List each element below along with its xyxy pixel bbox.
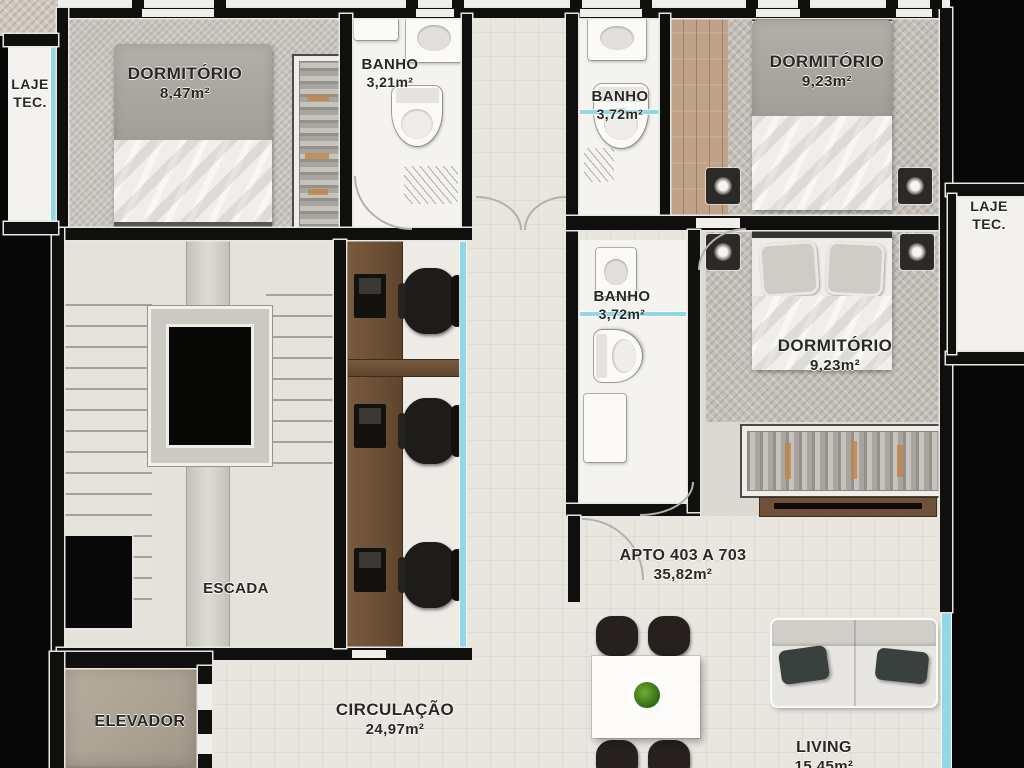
sink bbox=[588, 16, 646, 60]
room-area: 3,72m² bbox=[580, 306, 664, 323]
shaft-duct bbox=[64, 536, 132, 628]
stairs-stringer-top bbox=[186, 240, 230, 306]
dining-chair bbox=[648, 616, 690, 656]
laje-wall bbox=[948, 194, 956, 354]
stairs-right-flight bbox=[266, 294, 334, 464]
apartment-label: APTO 403 A 703 35,82m² bbox=[592, 546, 774, 584]
glass-partition bbox=[460, 242, 466, 648]
bed-pillow bbox=[825, 241, 886, 298]
wall-return bbox=[406, 0, 418, 9]
wardrobe bbox=[294, 56, 346, 232]
laptop bbox=[354, 404, 386, 448]
shower bbox=[404, 166, 458, 204]
laptop bbox=[354, 274, 386, 318]
laje-tec-left-floor bbox=[8, 46, 52, 226]
room-label-elevador: ELEVADOR bbox=[76, 712, 204, 732]
room-name: CIRCULAÇÃO bbox=[306, 700, 484, 721]
wall bbox=[660, 14, 670, 228]
room-area: 24,97m² bbox=[306, 721, 484, 739]
door-opening bbox=[142, 9, 214, 17]
door-opening bbox=[896, 9, 932, 17]
office-chair bbox=[402, 268, 458, 334]
door-opening bbox=[352, 650, 386, 658]
laje-wall-cap bbox=[4, 34, 58, 46]
tv-console bbox=[760, 498, 936, 516]
room-name: BANHO bbox=[580, 288, 664, 306]
room-label-dormitorio-3: DORMITÓRIO 9,23m² bbox=[745, 336, 925, 375]
wardrobe-clothes bbox=[897, 445, 903, 477]
sofa bbox=[772, 620, 936, 706]
laje-wall-cap bbox=[946, 352, 1024, 364]
room-area-cropped: 15,45m² bbox=[768, 758, 880, 768]
wall bbox=[57, 8, 68, 240]
room-area: 9,23m² bbox=[738, 73, 916, 91]
room-label-dormitorio-1: DORMITÓRIO 8,47m² bbox=[100, 64, 270, 103]
bed-pillow bbox=[758, 240, 820, 298]
room-name: LAJE TEC. bbox=[958, 198, 1020, 233]
bed bbox=[752, 14, 892, 210]
sofa-seat-divider bbox=[854, 620, 856, 706]
wall bbox=[334, 240, 346, 648]
wall-return bbox=[214, 0, 226, 9]
room-name: ESCADA bbox=[174, 580, 298, 598]
room-name: ELEVADOR bbox=[76, 712, 204, 732]
wall-return bbox=[570, 0, 582, 9]
room-name: DORMITÓRIO bbox=[745, 336, 925, 357]
wardrobe-clothes bbox=[305, 153, 329, 159]
laje-wall-cap bbox=[946, 184, 1024, 196]
office-chair bbox=[402, 398, 458, 464]
wall bbox=[566, 216, 952, 230]
laptop bbox=[354, 548, 386, 592]
room-label-escada: ESCADA bbox=[174, 580, 298, 598]
room-area: 9,23m² bbox=[745, 357, 925, 375]
room-area: 3,72m² bbox=[580, 106, 660, 123]
wall-return bbox=[930, 0, 942, 9]
nightstand-lamp bbox=[898, 168, 932, 204]
door-opening bbox=[580, 9, 642, 17]
wall-return bbox=[886, 0, 898, 9]
wall-return bbox=[798, 0, 810, 9]
dining-chair bbox=[596, 740, 638, 768]
office-chair bbox=[402, 542, 458, 608]
sofa-cushion bbox=[874, 647, 929, 684]
elevator-door-opening bbox=[198, 734, 212, 754]
wall bbox=[52, 228, 64, 660]
wall-return bbox=[640, 0, 652, 9]
door-opening bbox=[756, 9, 800, 17]
stairs-void bbox=[166, 324, 254, 448]
desk-divider bbox=[348, 360, 464, 376]
wall bbox=[566, 14, 578, 516]
wall bbox=[340, 14, 352, 236]
shower bbox=[584, 148, 614, 182]
wall bbox=[462, 14, 472, 236]
wardrobe bbox=[742, 426, 948, 496]
plant-centerpiece bbox=[634, 682, 660, 708]
wall-return bbox=[452, 0, 464, 9]
room-label-banho-1: BANHO 3,21m² bbox=[344, 56, 436, 91]
elevator-door-opening bbox=[198, 684, 212, 710]
nightstand-lamp bbox=[900, 234, 934, 270]
room-label-dormitorio-2: DORMITÓRIO 9,23m² bbox=[738, 52, 916, 91]
room-label-laje-tec-right: LAJE TEC. bbox=[958, 198, 1020, 233]
facade-outside-strip bbox=[58, 0, 950, 8]
room-area: 3,21m² bbox=[344, 74, 436, 91]
room-name: LAJE TEC. bbox=[6, 76, 54, 111]
wall bbox=[688, 230, 700, 512]
sink bbox=[406, 14, 462, 62]
bed-headboard bbox=[752, 230, 892, 238]
wall-return bbox=[746, 0, 758, 9]
stairs-stringer-bottom bbox=[186, 460, 230, 648]
wardrobe-clothes bbox=[308, 189, 328, 195]
room-label-banho-2: BANHO 3,72m² bbox=[580, 88, 660, 123]
wardrobe-clothes bbox=[307, 95, 329, 101]
room-label-living: LIVING 15,45m² bbox=[768, 738, 880, 768]
wardrobe-clothes bbox=[851, 441, 857, 479]
elevator-wall bbox=[50, 652, 212, 668]
floor-plan: LAJE TEC. DORMITÓRIO 8,47m² BANHO 3,21m²… bbox=[0, 0, 1024, 768]
wall bbox=[568, 516, 580, 602]
living-window bbox=[942, 608, 951, 768]
elevator-wall bbox=[50, 652, 64, 768]
nightstand-lamp bbox=[706, 168, 740, 204]
apartment-area: 35,82m² bbox=[592, 566, 774, 584]
door-opening bbox=[416, 9, 454, 17]
room-name: DORMITÓRIO bbox=[738, 52, 916, 73]
room-label-banho-3: BANHO 3,72m² bbox=[580, 288, 664, 323]
dining-chair bbox=[596, 616, 638, 656]
room-name: LIVING bbox=[768, 738, 880, 758]
room-name: DORMITÓRIO bbox=[100, 64, 270, 85]
vanity-counter bbox=[584, 394, 626, 462]
apartment-name: APTO 403 A 703 bbox=[592, 546, 774, 566]
bed-sheet bbox=[114, 140, 272, 224]
room-name: BANHO bbox=[580, 88, 660, 106]
laje-wall-cap bbox=[4, 222, 58, 234]
room-name: BANHO bbox=[344, 56, 436, 74]
dining-chair bbox=[648, 740, 690, 768]
wall bbox=[566, 504, 700, 516]
room-label-circulacao: CIRCULAÇÃO 24,97m² bbox=[306, 700, 484, 739]
wardrobe-clothes bbox=[785, 443, 791, 479]
wall-return bbox=[132, 0, 144, 9]
sofa-cushion bbox=[778, 645, 830, 685]
room-label-laje-tec-left: LAJE TEC. bbox=[6, 76, 54, 111]
bed-sheet bbox=[752, 116, 892, 210]
room-area: 8,47m² bbox=[100, 85, 270, 103]
door-opening bbox=[696, 218, 740, 228]
